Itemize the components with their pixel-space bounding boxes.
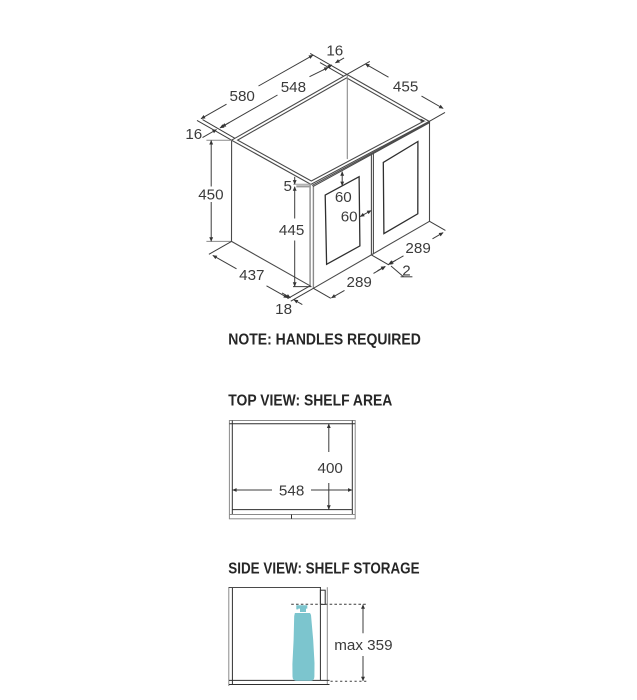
svg-text:445: 445	[279, 222, 304, 239]
svg-text:2: 2	[402, 262, 410, 279]
svg-text:548: 548	[281, 79, 306, 96]
svg-text:TOP VIEW: SHELF AREA: TOP VIEW: SHELF AREA	[228, 393, 392, 410]
svg-text:455: 455	[393, 78, 418, 95]
svg-text:289: 289	[347, 274, 372, 291]
svg-text:18: 18	[275, 301, 292, 318]
svg-text:580: 580	[230, 88, 255, 105]
svg-text:SIDE VIEW: SHELF STORAGE: SIDE VIEW: SHELF STORAGE	[228, 561, 419, 578]
svg-text:437: 437	[239, 267, 264, 284]
svg-text:16: 16	[185, 126, 202, 143]
svg-text:60: 60	[335, 189, 352, 206]
svg-text:max 359: max 359	[334, 637, 392, 654]
svg-text:NOTE: HANDLES REQUIRED: NOTE: HANDLES REQUIRED	[228, 332, 420, 349]
svg-text:5: 5	[283, 178, 291, 195]
svg-text:60: 60	[341, 209, 358, 226]
svg-text:289: 289	[405, 240, 430, 257]
svg-text:548: 548	[279, 482, 304, 499]
svg-text:450: 450	[198, 187, 223, 204]
svg-text:16: 16	[326, 43, 343, 60]
svg-text:400: 400	[318, 460, 343, 477]
